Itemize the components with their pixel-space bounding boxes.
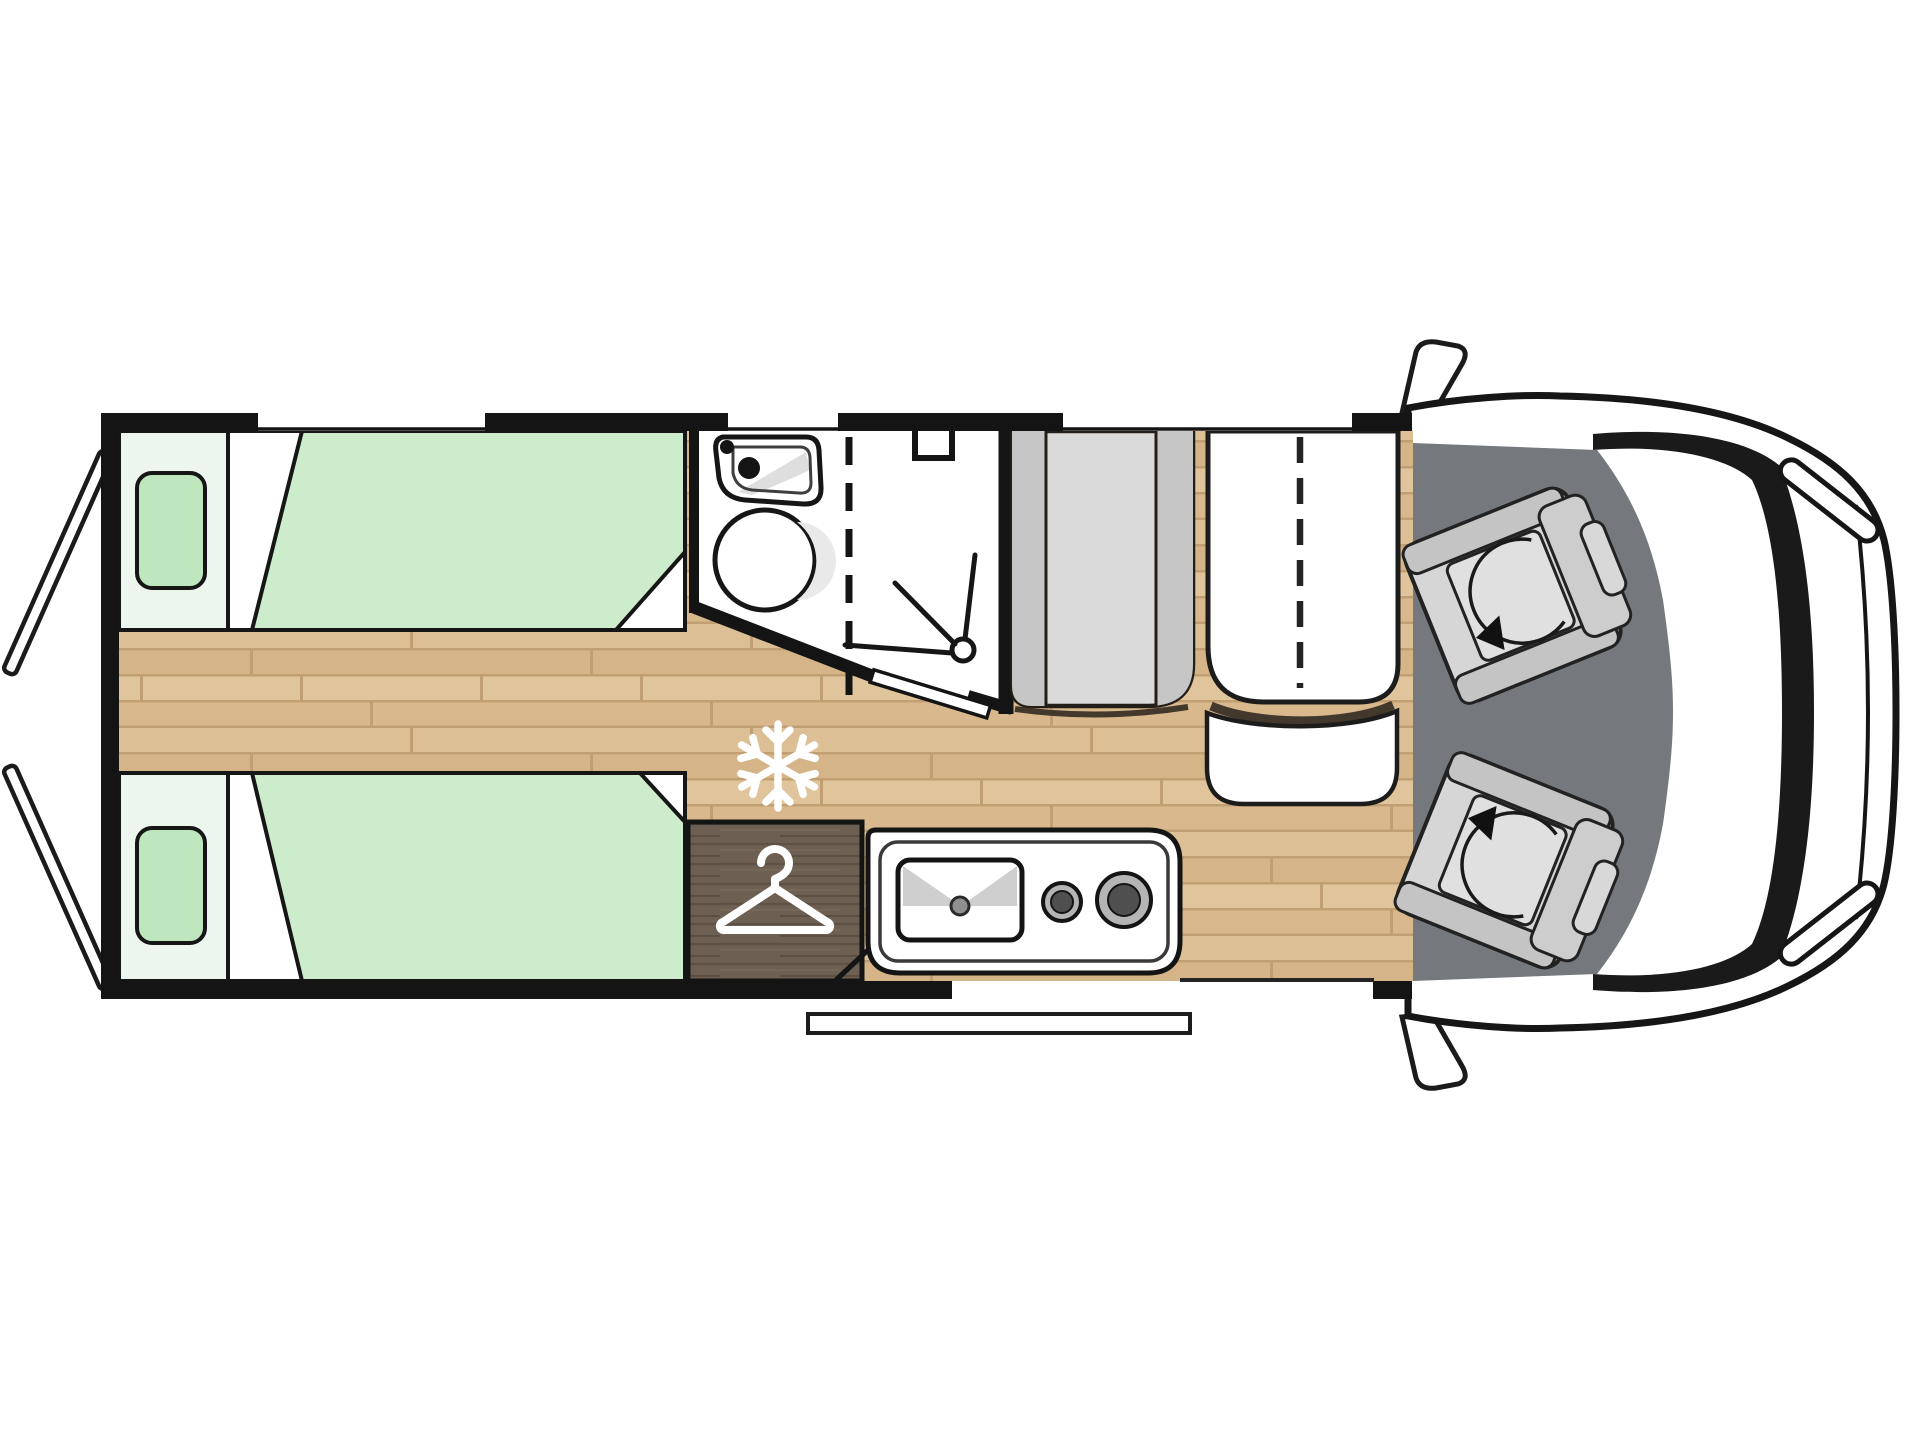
- washbasin: [716, 437, 821, 504]
- twin-bed-top: [119, 431, 685, 630]
- pillow-bottom: [137, 828, 205, 943]
- wardrobe: [688, 822, 862, 981]
- wall-bottom-left: [101, 981, 952, 999]
- kitchen-faucet: [951, 897, 969, 915]
- pillow-top: [137, 473, 205, 588]
- kitchen-unit: [836, 830, 1180, 980]
- burner-large: [1097, 873, 1151, 927]
- twin-bed-bottom: [119, 773, 685, 981]
- bench-side-strip: [1156, 431, 1193, 706]
- wall-rear: [101, 413, 119, 999]
- side-seat: [1207, 711, 1397, 804]
- wall-bottom-right: [1373, 981, 1412, 999]
- burner-small: [1043, 883, 1081, 921]
- shower-window: [915, 428, 952, 458]
- kitchen-sink: [898, 860, 1022, 940]
- basin-faucet-dot-small: [720, 440, 734, 454]
- mattress-top: [252, 431, 685, 630]
- mattress-bottom: [252, 773, 685, 981]
- floorplan-canvas: [0, 0, 1920, 1440]
- entry-step: [808, 1014, 1190, 1033]
- cab: [1392, 443, 1673, 981]
- basin-faucet-dot-large: [738, 457, 760, 479]
- bench-backrest-strip: [1012, 431, 1046, 706]
